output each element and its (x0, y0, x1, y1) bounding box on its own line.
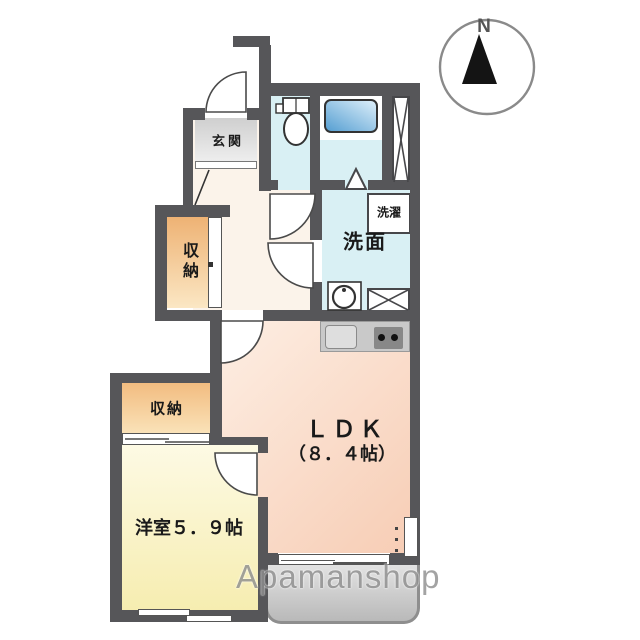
floor-plan: N 玄関 収納 洗面 洗濯 収納 ＬＤＫ （８．４帖） 洋室５．９帖 Apama… (0, 0, 640, 640)
wall (247, 108, 259, 120)
entrance-step (195, 161, 257, 169)
kitchen-sink (325, 325, 357, 349)
stove-burner-icon (391, 334, 398, 341)
wall (310, 282, 322, 321)
sliding-door-track (125, 438, 169, 440)
step-dots (395, 538, 398, 541)
washroom-label: 洗面 (343, 226, 387, 255)
pipe-space (392, 96, 410, 184)
entrance-door-arc (206, 72, 246, 112)
wall (110, 373, 122, 622)
door-handle (208, 262, 213, 267)
bedroom-storage-sliding-door (122, 433, 210, 445)
entrance-label: 玄関 (212, 131, 244, 150)
wall (193, 108, 205, 120)
pipe-space-2 (367, 288, 410, 312)
wall (263, 310, 420, 321)
north-arrow-icon (462, 34, 497, 84)
ldk-side-window (404, 517, 418, 557)
wall (410, 83, 420, 565)
wall (310, 180, 345, 190)
step-dots (395, 527, 398, 530)
ldk-label: ＬＤＫ (306, 410, 387, 444)
stove-burner-icon (378, 334, 385, 341)
wall (183, 108, 193, 212)
bathtub (324, 99, 378, 133)
bedroom-storage-label: 収納 (150, 398, 184, 419)
hall-storage-door (208, 217, 222, 308)
toilet-floor (271, 96, 310, 190)
wall (382, 96, 392, 190)
western-room-window (186, 615, 232, 622)
hall-storage-label: 収納 (176, 242, 200, 282)
wall (259, 180, 278, 190)
wall (259, 45, 271, 191)
ldk-size-label: （８．４帖） (288, 440, 396, 466)
wall (259, 83, 420, 96)
western-room-window (138, 609, 190, 616)
wall (310, 96, 320, 190)
wall (155, 205, 167, 320)
sliding-door-track (165, 441, 209, 443)
watermark: Apamanshop (236, 558, 440, 596)
wall (368, 180, 420, 190)
laundry-label: 洗濯 (377, 204, 401, 221)
wall (258, 437, 268, 453)
stove (374, 327, 403, 349)
western-room-label: 洋室５．９帖 (135, 514, 243, 540)
step-dots (395, 549, 398, 552)
wall (310, 190, 322, 240)
wall (110, 373, 222, 383)
compass-n-label: N (477, 16, 491, 38)
